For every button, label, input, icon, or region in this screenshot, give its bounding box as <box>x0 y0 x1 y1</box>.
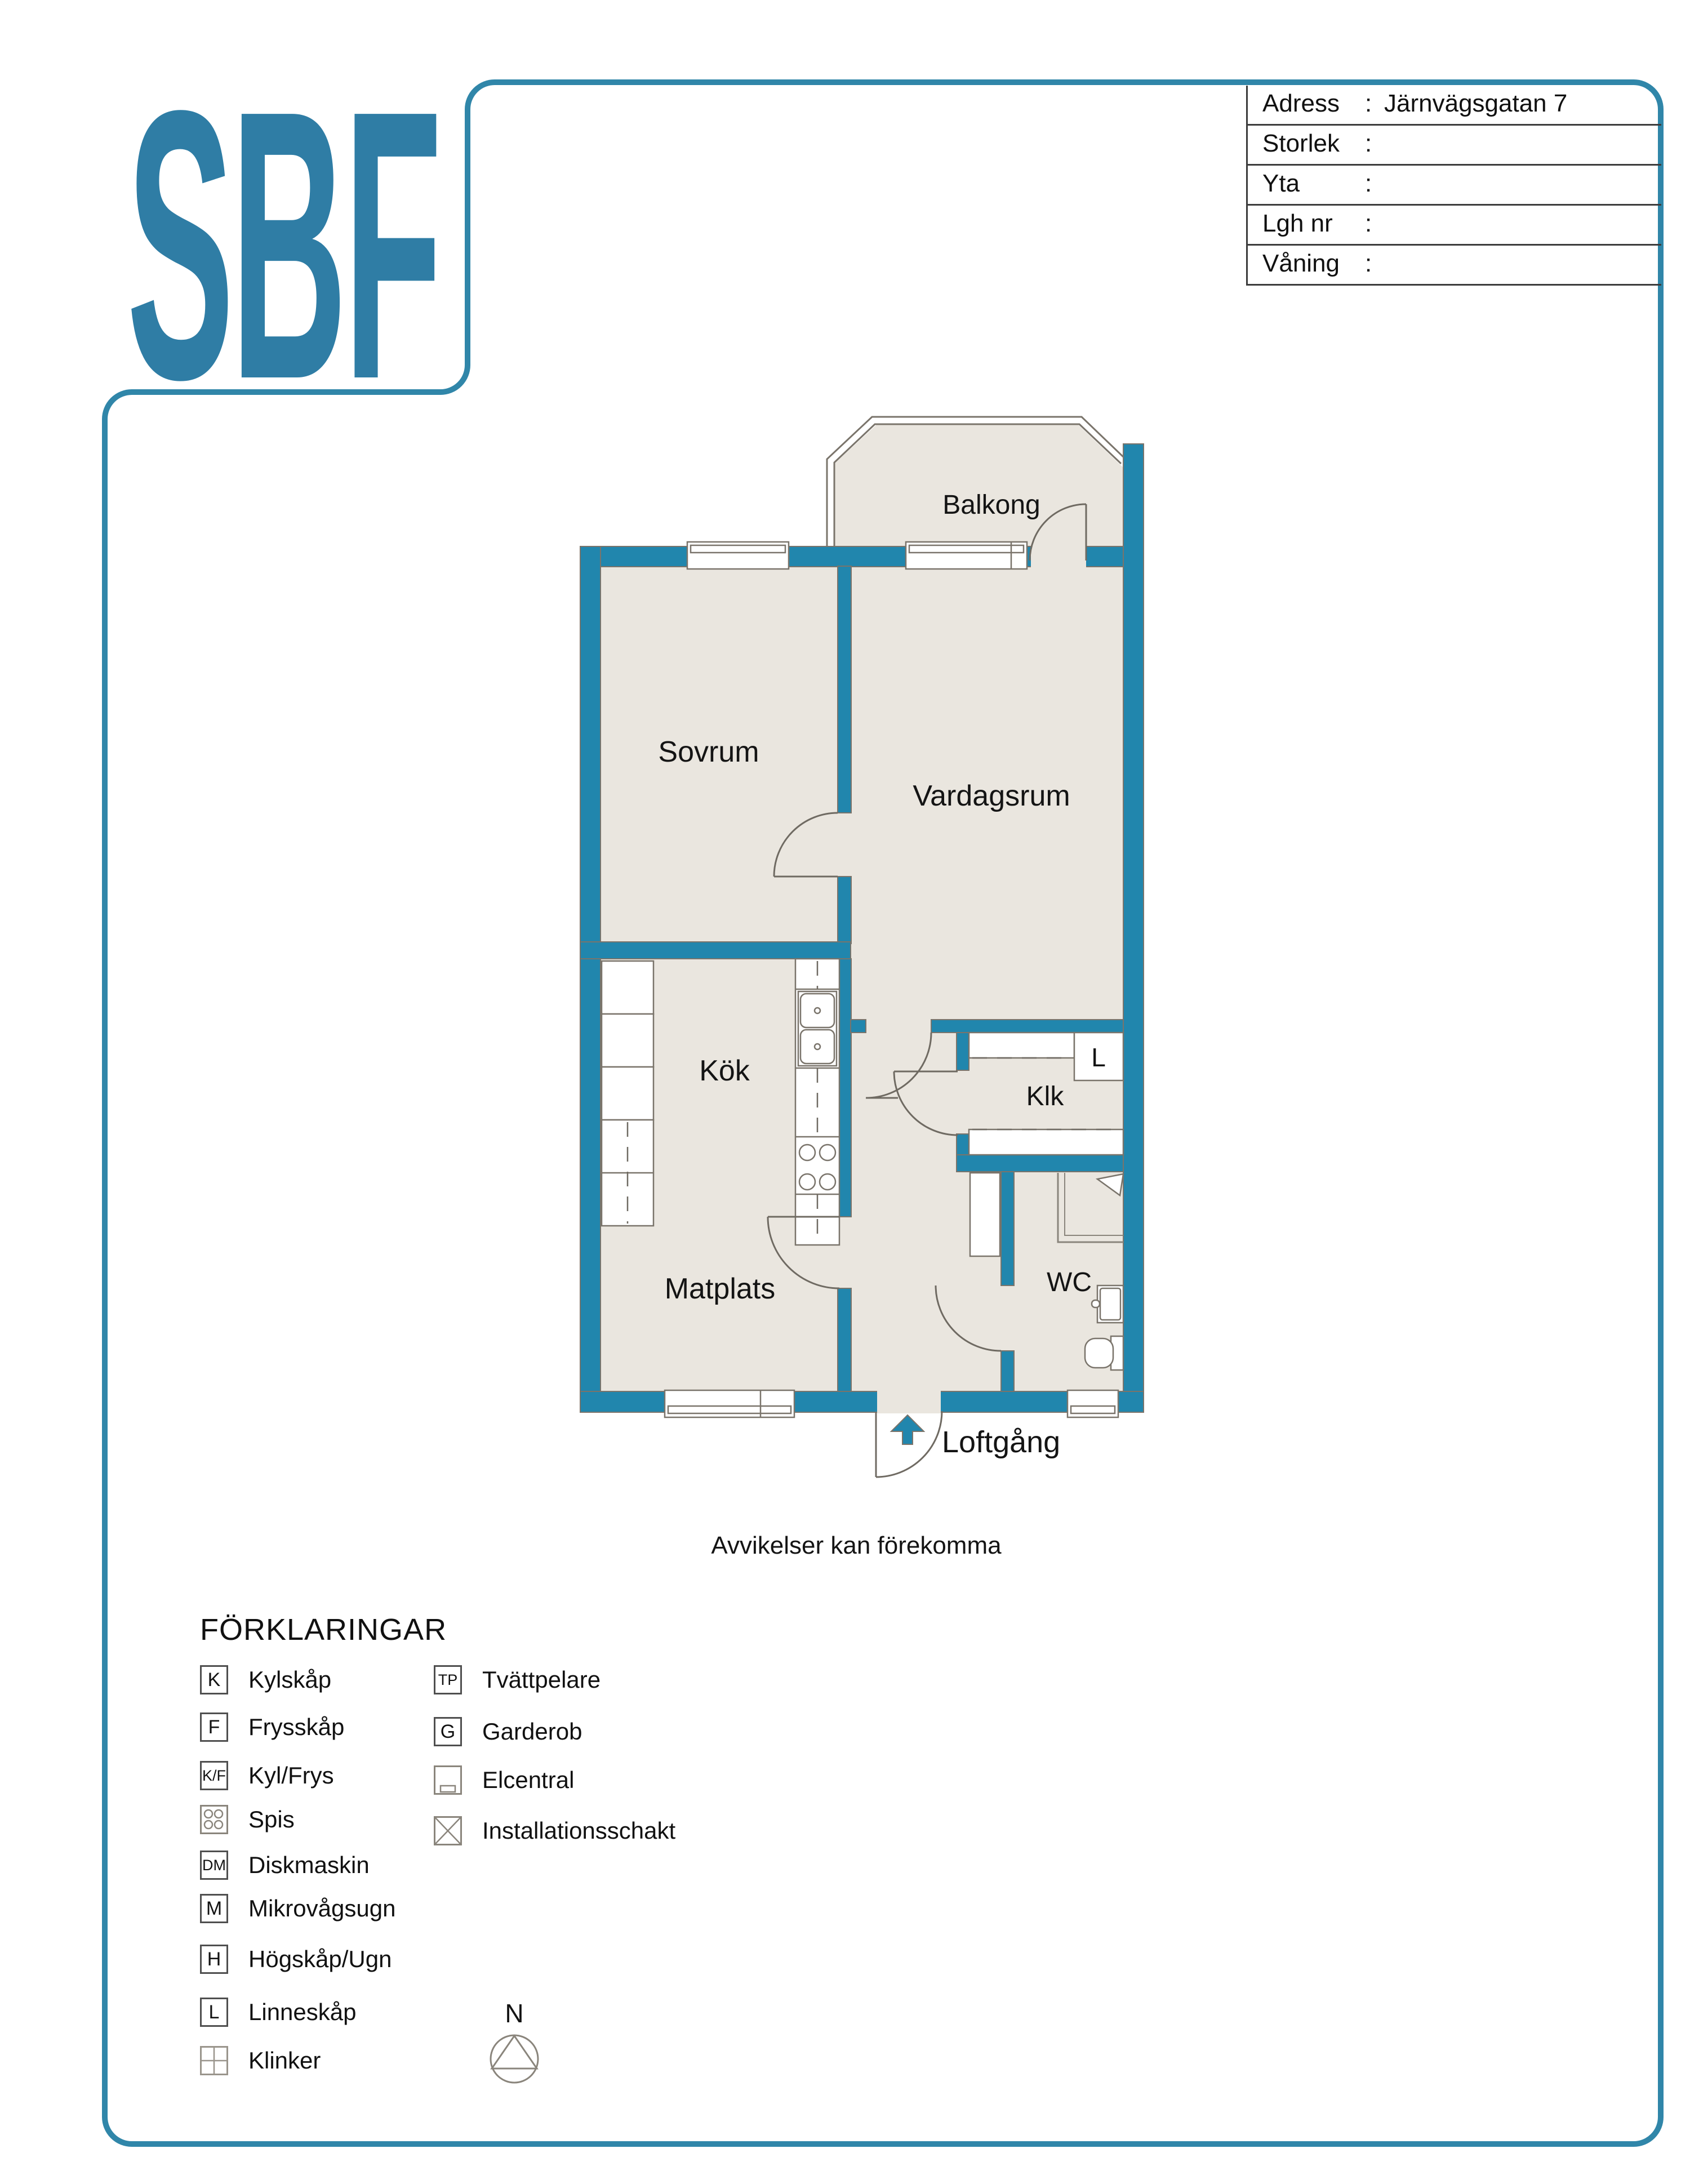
info-value: Järnvägsgatan 7 <box>1384 86 1661 124</box>
info-value <box>1384 206 1661 244</box>
garderob-symbol: G <box>434 1717 462 1746</box>
balcony-label: Balkong <box>942 490 1040 520</box>
wall-closet-west-upper <box>957 1033 969 1070</box>
info-label: Storlek <box>1248 126 1365 164</box>
info-label: Adress <box>1248 86 1365 124</box>
spis-icon <box>200 1805 228 1834</box>
info-separator: : <box>1365 126 1384 164</box>
entrance-arrow-icon <box>891 1415 924 1444</box>
info-row-adress: Adress : Järnvägsgatan 7 <box>1248 86 1661 126</box>
living-room-label: Vardagsrum <box>913 780 1070 812</box>
info-separator: : <box>1365 166 1384 204</box>
walkway-label: Loftgång <box>942 1425 1060 1459</box>
legend-title: FÖRKLARINGAR <box>200 1612 447 1647</box>
info-value <box>1384 246 1661 284</box>
legend-item-klinker: Klinker <box>200 2046 321 2075</box>
info-value <box>1384 166 1661 204</box>
info-separator: : <box>1365 246 1384 284</box>
wall-wc-west-upper <box>1001 1172 1014 1286</box>
frysskap-symbol: F <box>200 1712 228 1742</box>
floorplan-document: SBF <box>0 0 1690 2184</box>
closet-label: Klk <box>1026 1082 1065 1111</box>
info-row-yta: Yta : <box>1248 166 1661 206</box>
legend-item-frysskap: F Frysskåp <box>200 1712 344 1742</box>
compass: N <box>475 1989 554 2090</box>
info-label: Våning <box>1248 246 1365 284</box>
diskmaskin-symbol: DM <box>200 1851 228 1880</box>
wall-closet-north <box>931 1020 1123 1033</box>
legend-item-diskmaskin: DM Diskmaskin <box>200 1851 370 1880</box>
kylskap-symbol: K <box>200 1665 228 1694</box>
wall-east <box>1123 444 1144 1412</box>
info-table: Adress : Järnvägsgatan 7 Storlek : Yta :… <box>1246 86 1661 286</box>
legend-item-kylfrys: K/F Kyl/Frys <box>200 1761 334 1790</box>
info-row-storlek: Storlek : <box>1248 126 1661 166</box>
info-row-lghnr: Lgh nr : <box>1248 206 1661 246</box>
floorplan: Balkong Sovrum Vardagsrum Kök Klk L WC M… <box>580 417 1144 1559</box>
dining-label: Matplats <box>665 1273 776 1305</box>
info-label: Lgh nr <box>1248 206 1365 244</box>
legend-item-installationsschakt: Installationsschakt <box>434 1816 675 1845</box>
installationsschakt-icon <box>434 1816 462 1845</box>
legend-item-elcentral: Elcentral <box>434 1765 574 1795</box>
wall-bedroom-kitchen <box>580 942 851 959</box>
legend-item-mikrovagsugn: M Mikrovågsugn <box>200 1894 395 1923</box>
klinker-icon <box>200 2046 228 2075</box>
wall-closet-south <box>957 1155 1123 1172</box>
wall-living-hall-stub <box>851 1020 866 1033</box>
wall-bedroom-living-upper <box>838 566 851 813</box>
tvattpelare-symbol: TP <box>434 1665 462 1694</box>
wall-kitchen-hall-lower <box>838 1288 851 1391</box>
info-separator: : <box>1365 86 1384 124</box>
balcony-door-threshold <box>1031 545 1086 567</box>
info-label: Yta <box>1248 166 1365 204</box>
legend-item-hogskap: H Högskåp/Ugn <box>200 1945 392 1974</box>
wall-west <box>580 546 601 1412</box>
disclaimer-text: Avvikelser kan förekomma <box>711 1532 1002 1559</box>
wall-wc-west-lower <box>1001 1351 1014 1391</box>
apartment-floor <box>600 566 1124 1391</box>
wc-label: WC <box>1047 1267 1092 1297</box>
linen-cabinet-label: L <box>1091 1043 1106 1072</box>
info-value <box>1384 126 1661 164</box>
legend-item-garderob: G Garderob <box>434 1717 582 1746</box>
wall-bedroom-living-lower <box>838 877 851 944</box>
legend-item-tvattpelare: TP Tvättpelare <box>434 1665 601 1694</box>
mikrovagsugn-symbol: M <box>200 1894 228 1923</box>
info-separator: : <box>1365 206 1384 244</box>
info-row-vaning: Våning : <box>1248 246 1661 286</box>
linneskap-symbol: L <box>200 1998 228 2027</box>
elcentral-icon <box>434 1765 462 1795</box>
legend-item-linneskap: L Linneskåp <box>200 1998 356 2027</box>
bedroom-label: Sovrum <box>658 736 759 768</box>
entrance-threshold <box>877 1391 941 1413</box>
kitchen-label: Kök <box>699 1055 750 1087</box>
legend-item-spis: Spis <box>200 1805 295 1834</box>
toilet <box>1085 1336 1123 1370</box>
kylfrys-symbol: K/F <box>200 1761 228 1790</box>
hall-cabinet <box>970 1173 1000 1256</box>
legend-item-kylskap: K Kylskåp <box>200 1665 331 1694</box>
hogskap-symbol: H <box>200 1945 228 1974</box>
compass-north-label: N <box>505 1999 523 2028</box>
